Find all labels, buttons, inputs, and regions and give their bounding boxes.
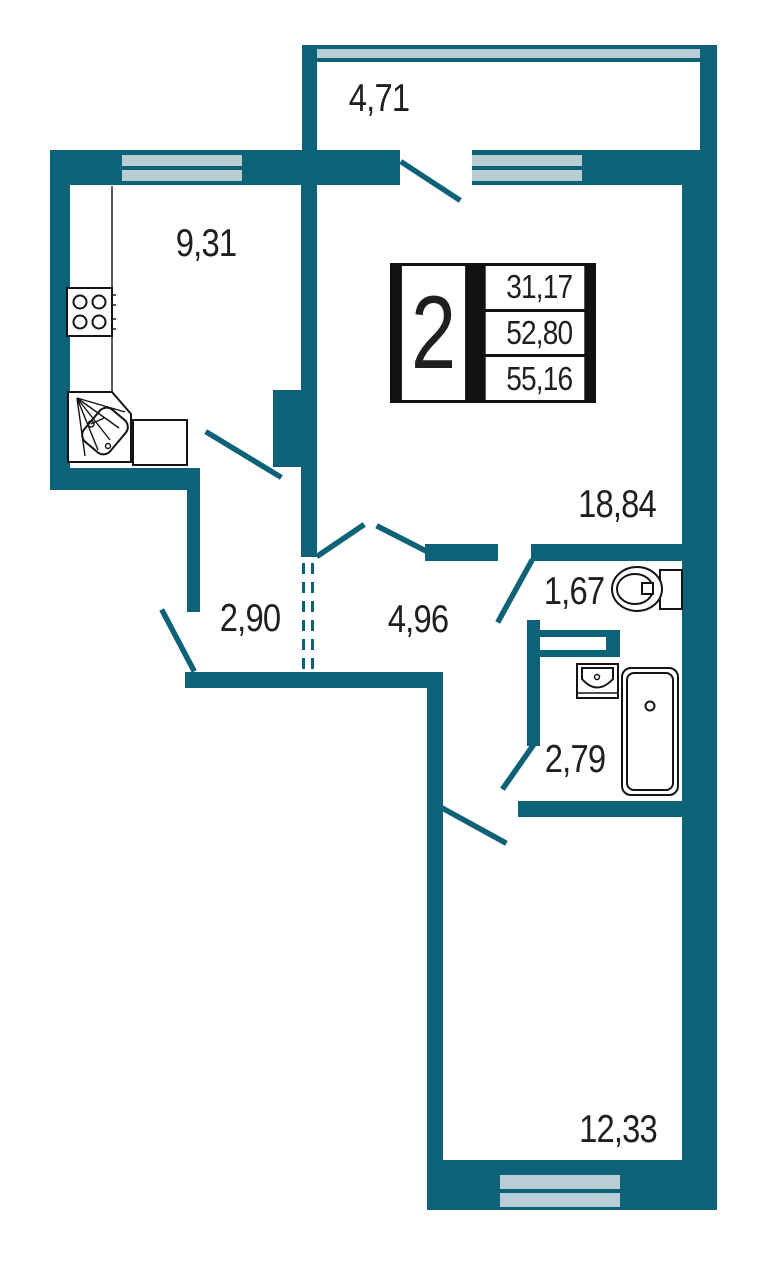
total-area-value: 55,16 — [486, 357, 585, 400]
doors-and-fixtures-layer — [0, 0, 764, 1262]
kitchen-counter-icon — [133, 420, 187, 465]
hallway-area-label: 2,90 — [220, 597, 280, 641]
kitchen-door-swing — [208, 433, 279, 476]
rooms-count: 2 — [402, 266, 465, 400]
balcony-area-label: 4,71 — [349, 77, 409, 121]
toilet-door-swing — [499, 562, 531, 620]
apartment-summary-table: 2 31,17 52,80 55,16 — [390, 263, 596, 403]
toilet-icon — [612, 567, 682, 611]
bedroom-area-label: 12,33 — [579, 1108, 657, 1152]
entrance-door-swing — [163, 612, 193, 669]
living-area-value: 31,17 — [486, 266, 585, 309]
living-door-swing-left — [319, 526, 362, 555]
bathroom-area-label: 2,79 — [545, 738, 605, 782]
corridor-area-label: 4,96 — [388, 598, 448, 642]
bathtub-icon — [622, 668, 678, 795]
kitchen-sink-icon — [68, 392, 132, 462]
living-door-swing-right — [379, 527, 426, 551]
floor-plan: 4,71 9,31 18,84 2,90 4,96 1,67 2,79 12,3… — [0, 0, 764, 1262]
washbasin-icon — [577, 664, 618, 698]
bathroom-door-swing — [504, 747, 532, 787]
kitchen-area-label: 9,31 — [176, 222, 236, 266]
stove-icon — [67, 288, 116, 336]
apartment-area-value: 52,80 — [486, 312, 585, 355]
toilet-area-label: 1,67 — [544, 570, 604, 614]
bedroom-door-swing — [444, 809, 504, 842]
balcony-door-swing — [403, 163, 458, 199]
living-area-label: 18,84 — [578, 483, 656, 527]
